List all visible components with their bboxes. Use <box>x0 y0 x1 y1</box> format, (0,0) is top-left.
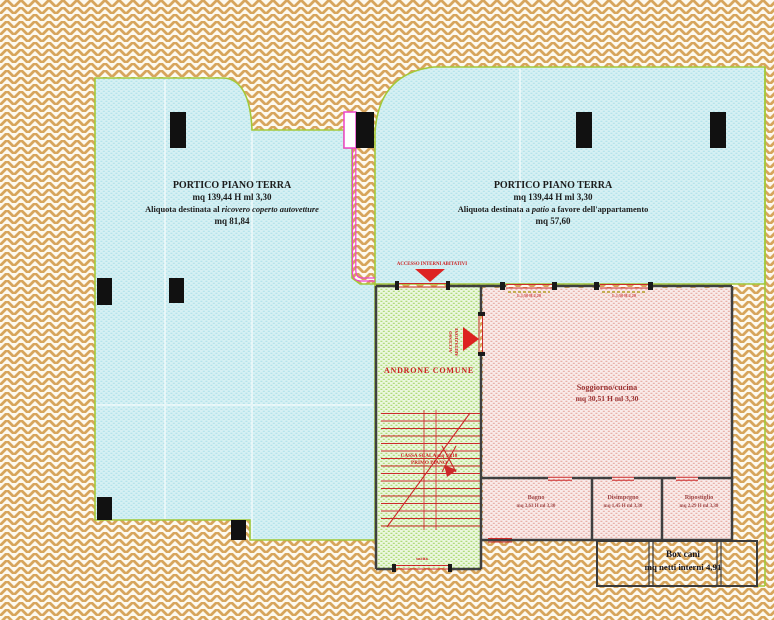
aliquota-suffix: a favore dell'appartamento <box>549 205 648 214</box>
pillar <box>170 112 186 148</box>
soggiorno-name: Soggiorno/cucina <box>577 383 638 392</box>
portico-right-title: PORTICO PIANO TERRA <box>494 180 613 191</box>
pillar <box>231 520 246 540</box>
portico-right-aliquota-area: mq 57,60 <box>535 216 571 226</box>
stair-treads <box>381 410 480 530</box>
magenta-framed-jamb <box>344 112 356 148</box>
stair-label-2: PRIMO PIANO <box>411 460 447 466</box>
portico-left-area-text: mq 139,44 H ml 3,30 <box>192 192 272 202</box>
access-side-label-1: ACCESSO <box>448 331 453 353</box>
ripostiglio-name: Ripostiglio <box>685 494 714 501</box>
pillar <box>97 278 112 305</box>
aliquota-prefix: Aliquota destinata al <box>145 205 222 214</box>
portico-right-area <box>375 67 765 284</box>
portico-left-aliquota-area: mq 81,84 <box>214 216 250 226</box>
androne-label: ANDRONE COMUNE <box>384 366 474 375</box>
box-cani-dims: mq netti interni 4,91 <box>645 562 722 572</box>
pillar <box>356 112 374 148</box>
pillar <box>169 278 184 303</box>
bagno-name: Bagno <box>528 494 545 501</box>
aliquota-prefix: Aliquota destinata a <box>458 205 532 214</box>
stair-label-1: CASSA SCALA mq 10,18 <box>401 453 458 459</box>
soggiorno-area <box>483 288 731 539</box>
aliquota-italic: ricovero coperto autovetture <box>222 205 320 214</box>
portico-left-aliquota: Aliquota destinata al ricovero coperto a… <box>145 205 319 214</box>
exit-label: uscita <box>416 556 428 561</box>
access-side-label-2: ABITAZIONE <box>454 327 459 356</box>
pillar <box>576 112 592 148</box>
ripostiglio-dims: mq 2,29 H ml 3,30 <box>680 504 719 509</box>
pillar <box>710 112 726 148</box>
access-top-label: ACCESSO INTERNI ABITATIVI <box>397 262 467 267</box>
aliquota-italic: patio <box>531 205 549 214</box>
window2-label: L.1,50 H.2,20 <box>612 293 636 298</box>
portico-right-area-text: mq 139,44 H ml 3,30 <box>513 192 593 202</box>
pillar <box>97 497 112 520</box>
window1-label: L.1,50 H.2,20 <box>517 293 541 298</box>
portico-left-area <box>95 78 375 540</box>
portico-left-title: PORTICO PIANO TERRA <box>173 180 292 191</box>
disimpegno-name: Disimpegno <box>607 494 638 501</box>
portico-right-aliquota: Aliquota destinata a patio a favore dell… <box>458 205 649 214</box>
disimpegno-dims: mq 1,45 H ml 3,30 <box>604 504 643 509</box>
soggiorno-dims: mq 30,51 H ml 3,30 <box>576 394 639 403</box>
bagno-dims: mq 3,63 H ml 3,30 <box>517 504 556 509</box>
floor-plan-svg: PORTICO PIANO TERRA mq 139,44 H ml 3,30 … <box>0 0 774 620</box>
box-cani-name: Box cani <box>666 549 700 559</box>
